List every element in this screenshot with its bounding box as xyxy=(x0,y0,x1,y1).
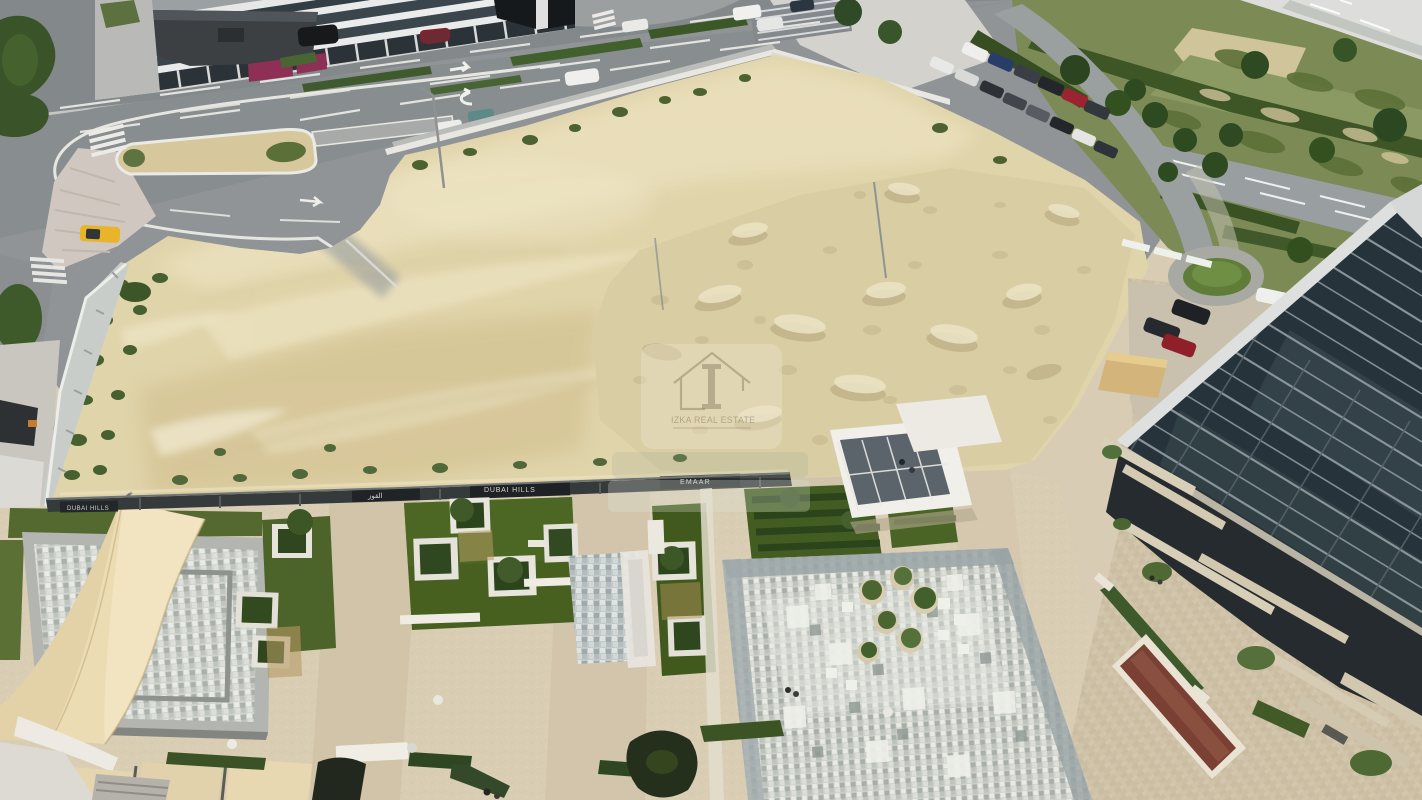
svg-text:DUBAI HILLS: DUBAI HILLS xyxy=(67,506,109,512)
svg-text:IZKA REAL ESTATE: IZKA REAL ESTATE xyxy=(671,415,755,425)
svg-text:DUBAI HILLS: DUBAI HILLS xyxy=(484,487,536,494)
svg-text:القوز: القوز xyxy=(367,492,383,500)
